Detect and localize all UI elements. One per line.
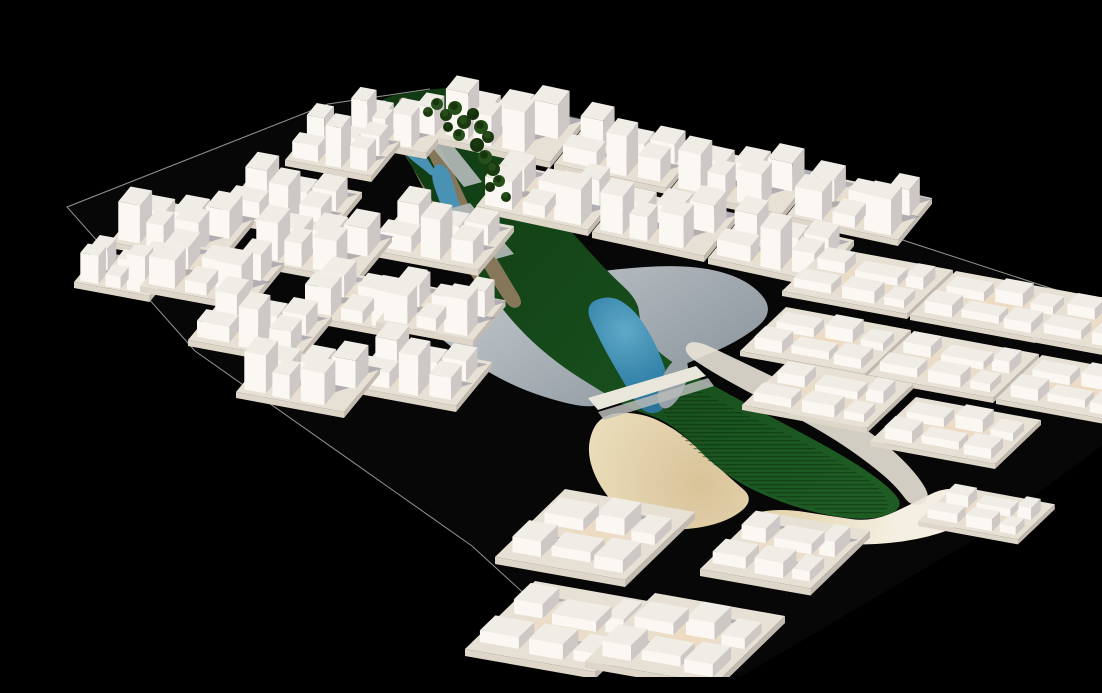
tree-canopy-highlight — [472, 139, 480, 147]
tree — [493, 175, 505, 187]
building — [600, 178, 634, 235]
masterplan-svg — [40, 16, 1102, 677]
building — [864, 180, 902, 235]
building — [326, 113, 351, 168]
box-front-face — [678, 150, 700, 193]
building — [531, 85, 569, 139]
box-front-face — [659, 211, 684, 248]
tree — [453, 129, 465, 141]
tree-canopy-highlight — [424, 107, 430, 113]
tree-canopy-highlight — [459, 116, 467, 124]
building — [301, 356, 336, 406]
building — [384, 280, 417, 324]
tree-canopy-highlight — [433, 99, 440, 106]
box-front-face — [272, 372, 289, 399]
tree — [467, 108, 479, 120]
box-front-face — [630, 214, 648, 242]
building — [80, 243, 106, 284]
box-front-face — [399, 352, 418, 396]
box-front-face — [284, 240, 301, 267]
tree-canopy-highlight — [455, 130, 462, 137]
tree-canopy-highlight — [444, 122, 450, 128]
masterplan-render — [40, 16, 1102, 677]
tree — [448, 101, 462, 115]
building — [149, 243, 186, 289]
box-front-face — [502, 108, 524, 153]
box-front-face — [244, 351, 266, 393]
box-front-face — [421, 216, 440, 260]
building — [502, 95, 535, 152]
box-front-face — [451, 238, 473, 264]
box-front-face — [600, 192, 622, 235]
box-front-face — [760, 226, 780, 270]
building — [606, 118, 638, 177]
tree — [423, 107, 433, 117]
tree — [478, 150, 492, 164]
box-front-face — [350, 146, 367, 171]
building — [444, 283, 478, 336]
box-front-face — [531, 99, 558, 139]
tree-canopy-highlight — [486, 182, 492, 188]
building — [292, 132, 325, 162]
building — [795, 174, 832, 220]
tree — [431, 98, 443, 110]
box-front-face — [384, 292, 407, 324]
tree — [485, 182, 495, 192]
tree — [470, 138, 484, 152]
box-front-face — [795, 187, 822, 221]
tree-canopy-highlight — [442, 110, 449, 117]
tree-canopy-highlight — [495, 176, 502, 183]
tree — [482, 131, 494, 143]
tree — [501, 192, 511, 202]
box-front-face — [301, 369, 325, 405]
building — [197, 309, 239, 342]
building — [760, 212, 792, 271]
tree — [486, 162, 500, 176]
box-front-face — [429, 374, 451, 400]
box-front-face — [554, 184, 581, 226]
tree-canopy-highlight — [488, 163, 496, 171]
box-front-face — [864, 194, 891, 236]
box-front-face — [118, 201, 140, 243]
tree-canopy-highlight — [476, 121, 484, 129]
building — [554, 170, 592, 225]
box-front-face — [80, 253, 98, 284]
tree — [443, 122, 453, 132]
box-front-face — [149, 256, 175, 289]
building — [659, 199, 694, 249]
box-front-face — [444, 296, 467, 336]
tree-canopy-highlight — [469, 109, 476, 116]
tree-canopy-highlight — [484, 132, 491, 139]
tree-canopy-highlight — [502, 192, 508, 198]
tree-canopy-highlight — [450, 102, 458, 110]
box-front-face — [326, 125, 342, 168]
building — [678, 136, 712, 193]
tree-canopy-highlight — [480, 151, 488, 159]
